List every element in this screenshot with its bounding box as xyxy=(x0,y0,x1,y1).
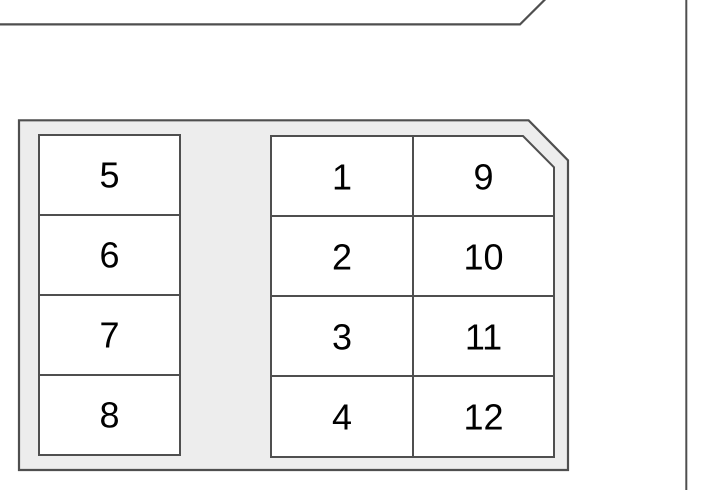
svg-text:7: 7 xyxy=(99,315,119,356)
svg-text:8: 8 xyxy=(99,395,119,436)
svg-text:12: 12 xyxy=(463,397,503,438)
svg-text:6: 6 xyxy=(99,235,119,276)
svg-text:5: 5 xyxy=(99,155,119,196)
svg-text:9: 9 xyxy=(473,157,493,198)
svg-text:3: 3 xyxy=(332,317,352,358)
svg-text:11: 11 xyxy=(465,317,502,358)
svg-text:4: 4 xyxy=(332,397,352,438)
svg-text:10: 10 xyxy=(463,237,503,278)
svg-text:2: 2 xyxy=(332,237,352,278)
svg-text:1: 1 xyxy=(332,157,352,198)
